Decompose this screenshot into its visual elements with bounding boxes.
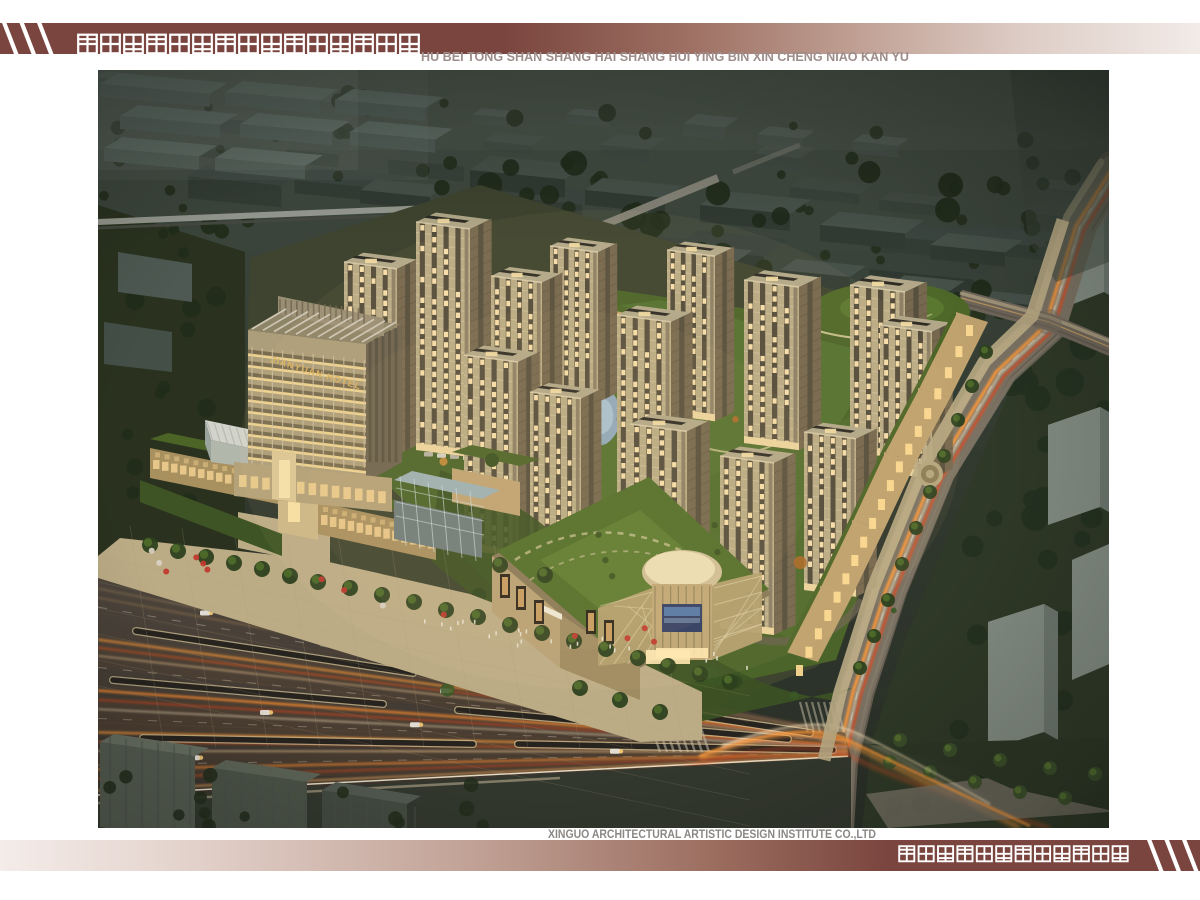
svg-text:HU BEI TONG SHAN SHANG HAI SHA: HU BEI TONG SHAN SHANG HAI SHANG HUI YIN… — [421, 50, 909, 64]
svg-text:XINGUO ARCHITECTURAL ARTISTIC: XINGUO ARCHITECTURAL ARTISTIC DESIGN INS… — [548, 829, 876, 841]
